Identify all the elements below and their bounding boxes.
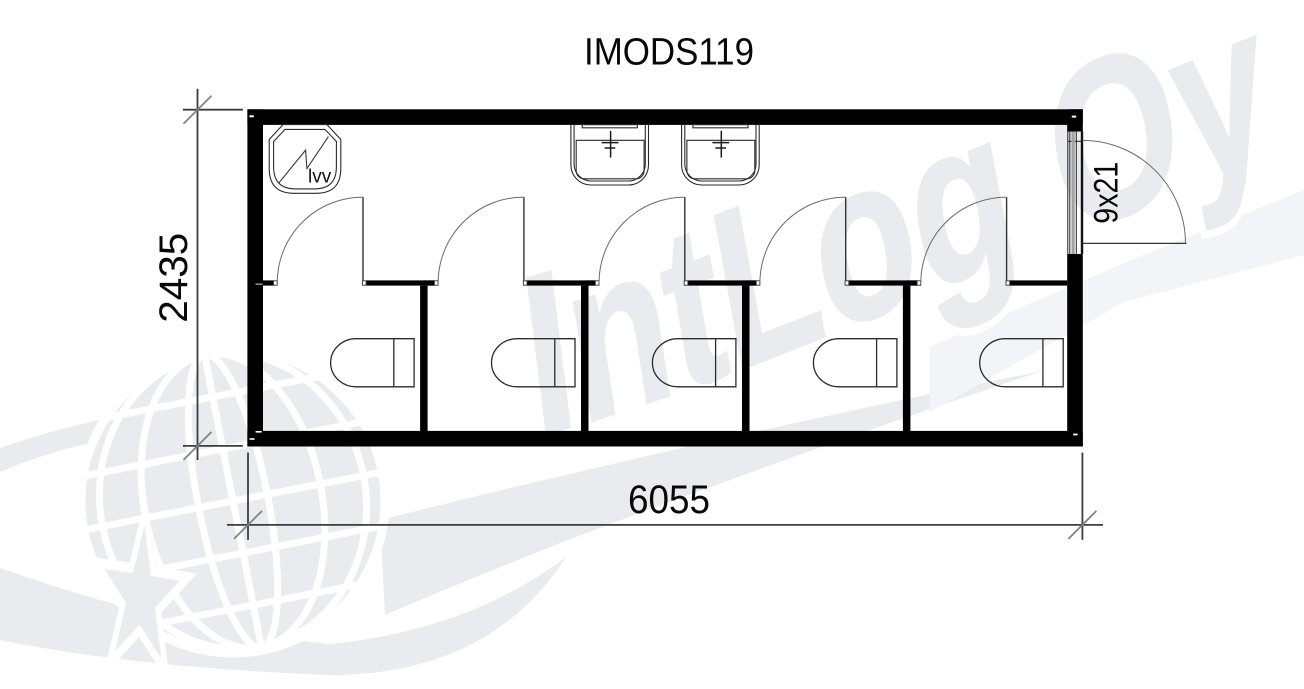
svg-text:lvv: lvv [308,167,332,188]
svg-text:2435: 2435 [152,233,196,323]
svg-text:6055: 6055 [628,478,710,522]
svg-text:IMODS119: IMODS119 [584,32,754,74]
svg-text:9x21: 9x21 [1088,162,1126,224]
